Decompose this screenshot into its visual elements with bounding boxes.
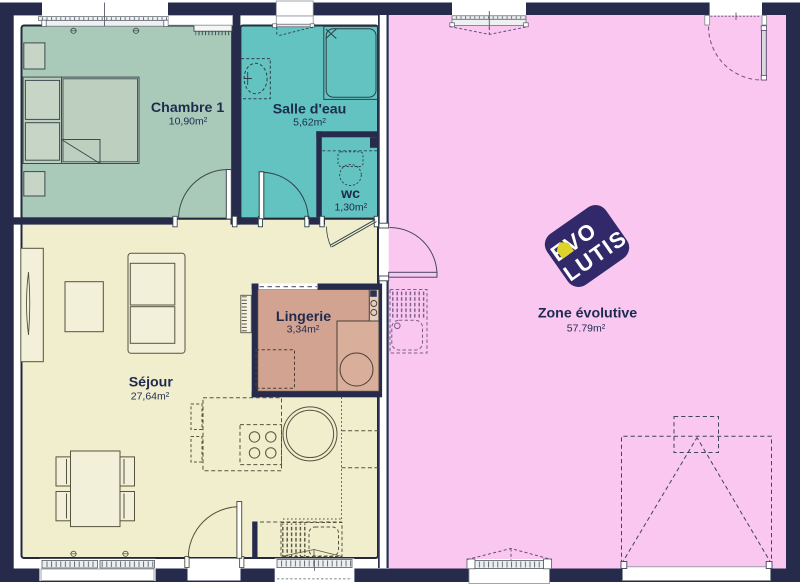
svg-text:10,90m²: 10,90m² [169, 116, 208, 128]
svg-text:Séjour: Séjour [129, 375, 174, 391]
svg-text:5,62m²: 5,62m² [293, 117, 326, 129]
svg-text:57.79m²: 57.79m² [567, 323, 606, 335]
svg-text:3,34m²: 3,34m² [287, 324, 320, 336]
svg-text:Chambre 1: Chambre 1 [151, 100, 224, 116]
svg-text:27,64m²: 27,64m² [131, 391, 170, 403]
svg-text:Zone évolutive: Zone évolutive [538, 306, 637, 322]
svg-text:Salle d'eau: Salle d'eau [273, 102, 347, 118]
svg-text:Lingerie: Lingerie [276, 309, 331, 325]
svg-text:1,30m²: 1,30m² [334, 202, 367, 214]
svg-text:wc: wc [340, 186, 360, 202]
